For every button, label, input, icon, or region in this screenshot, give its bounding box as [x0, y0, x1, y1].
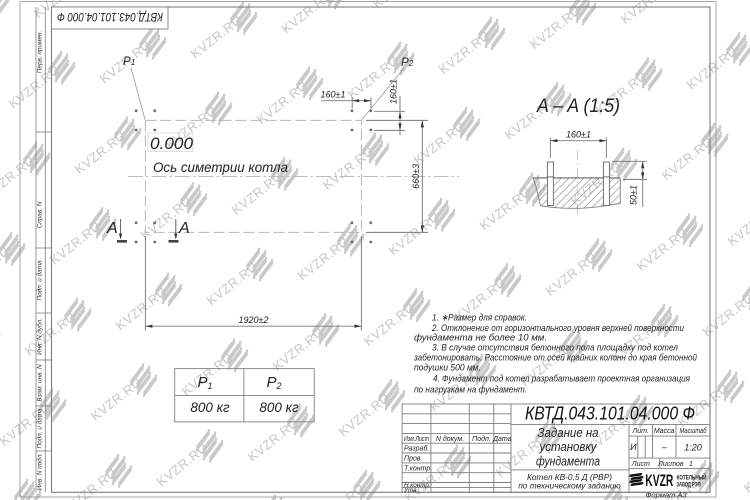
svg-text:P1: P1	[123, 56, 136, 68]
svg-text:KVZR.RU: KVZR.RU	[659, 134, 716, 183]
svg-text:забетонировать. Расстояние от: забетонировать. Расстояние от осей крайн…	[413, 353, 697, 363]
svg-text:КВТД.043.101.04.000 Ф: КВТД.043.101.04.000 Ф	[57, 10, 163, 24]
svg-text:Лист: Лист	[631, 461, 650, 468]
svg-text:фундамента: фундамента	[536, 454, 600, 469]
svg-text:KVZR.RU: KVZR.RU	[477, 184, 534, 233]
svg-text:KVZR.RU: KVZR.RU	[543, 250, 600, 299]
svg-text:Справ. N: Справ. N	[37, 201, 44, 228]
svg-text:И: И	[630, 442, 637, 452]
svg-text:A: A	[106, 220, 118, 237]
svg-text:Разраб.: Разраб.	[404, 445, 429, 453]
svg-text:800 кг: 800 кг	[190, 400, 230, 415]
svg-text:Масштаб: Масштаб	[680, 427, 708, 435]
svg-text:фундамента не более 10 мм.: фундамента не более 10 мм.	[414, 332, 547, 342]
svg-text:KVZR.RU: KVZR.RU	[618, 0, 675, 27]
svg-text:KVZR.RU: KVZR.RU	[386, 209, 443, 258]
svg-text:Инв. N подл.: Инв. N подл.	[36, 453, 44, 490]
svg-text:KVZR.RU: KVZR.RU	[361, 300, 418, 349]
svg-text:KVZR.RU: KVZR.RU	[188, 12, 245, 61]
svg-text:КВТД.043.101.04.000 Ф: КВТД.043.101.04.000 Ф	[525, 404, 695, 424]
svg-text:KVZR.RU: KVZR.RU	[684, 44, 741, 93]
svg-text:1: 1	[689, 461, 693, 468]
svg-text:1. ∗Размер для справок.: 1. ∗Размер для справок.	[432, 313, 527, 323]
svg-text:Листов: Листов	[657, 461, 684, 468]
svg-text:A – A (1:5): A – A (1:5)	[536, 96, 620, 117]
svg-text:по техническому заданию: по техническому заданию	[518, 481, 621, 491]
svg-text:KVZR.RU: KVZR.RU	[270, 325, 327, 374]
svg-text:Перв. примен.: Перв. примен.	[37, 31, 44, 73]
svg-text:Подп.: Подп.	[472, 435, 491, 443]
svg-text:Задание на: Задание на	[538, 425, 599, 440]
svg-text:KVZR.RU: KVZR.RU	[88, 375, 145, 424]
svg-text:Масса: Масса	[654, 428, 675, 435]
svg-text:1920±2: 1920±2	[239, 315, 269, 325]
svg-text:KVZR.RU: KVZR.RU	[725, 200, 750, 249]
svg-text:по нагрузкам на фундамент.: по нагрузкам на фундамент.	[414, 384, 527, 394]
svg-text:KVZR.RU: KVZR.RU	[47, 219, 104, 268]
svg-text:P2: P2	[401, 57, 414, 69]
svg-text:–: –	[661, 442, 668, 452]
svg-text:KVZR.RU: KVZR.RU	[245, 415, 302, 464]
svg-text:160±1: 160±1	[389, 79, 399, 104]
svg-text:660±3: 660±3	[411, 164, 421, 189]
svg-text:KVZR.RU: KVZR.RU	[741, 447, 750, 496]
svg-text:1:20: 1:20	[684, 443, 702, 453]
svg-text:подушки 500 мм.: подушки 500 мм.	[414, 362, 481, 372]
svg-text:KVZR.RU: KVZR.RU	[320, 144, 377, 193]
svg-text:установку: установку	[539, 439, 598, 454]
svg-text:Утв.: Утв.	[403, 487, 418, 494]
svg-text:800 кг: 800 кг	[259, 400, 299, 415]
svg-text:160±1: 160±1	[321, 90, 346, 100]
svg-text:KVZR.RU: KVZR.RU	[6, 62, 63, 111]
svg-text:KVZR.RU: KVZR.RU	[72, 128, 129, 177]
svg-text:KVZR: KVZR	[645, 472, 673, 490]
svg-text:Ось симетрии котла: Ось симетрии котла	[153, 160, 288, 175]
svg-text:KVZR.RU: KVZR.RU	[527, 3, 584, 52]
svg-text:4. Фундамент под котел разраб: 4. Фундамент под котел разрабатывает про…	[433, 373, 690, 383]
svg-text:N докум.: N докум.	[436, 435, 464, 443]
svg-text:KVZR.RU: KVZR.RU	[204, 259, 261, 308]
svg-text:Инв. N дубл.: Инв. N дубл.	[36, 318, 44, 355]
svg-text:KVZR.RU: KVZR.RU	[436, 28, 493, 77]
svg-text:Т.контр.: Т.контр.	[404, 465, 432, 472]
svg-text:A: A	[178, 220, 190, 237]
svg-text:2. Отклонение от горизонтальн: 2. Отклонение от горизонтального уровня …	[431, 323, 684, 333]
svg-text:KVZR.RU: KVZR.RU	[295, 234, 352, 283]
svg-text:3. В случае отсутствия бетонн: 3. В случае отсутствия бетонного пола пл…	[432, 343, 678, 353]
svg-text:160±1: 160±1	[566, 129, 591, 139]
svg-text:Подп. и дата: Подп. и дата	[36, 408, 44, 448]
svg-text:P2: P2	[266, 374, 281, 391]
svg-text:ЗАВОД РЭП: ЗАВОД РЭП	[677, 481, 701, 488]
svg-text:Взам. инв. N: Взам. инв. N	[37, 364, 44, 402]
svg-text:KVZR.RU: KVZR.RU	[634, 225, 691, 274]
svg-text:Лит.: Лит.	[631, 428, 648, 435]
svg-text:KVZR.RU: KVZR.RU	[279, 0, 336, 36]
svg-text:Изм.Лист: Изм.Лист	[404, 436, 429, 443]
svg-text:KVZR.RU: KVZR.RU	[411, 119, 468, 168]
svg-text:KVZR.RU: KVZR.RU	[229, 169, 286, 218]
svg-text:KVZR.RU: KVZR.RU	[154, 440, 211, 489]
svg-text:Формат А3: Формат А3	[645, 491, 687, 500]
svg-text:KVZR.RU: KVZR.RU	[700, 290, 750, 339]
svg-text:KVZR.RU: KVZR.RU	[254, 78, 311, 127]
svg-text:Пров.: Пров.	[404, 456, 423, 463]
svg-text:KVZR.RU: KVZR.RU	[63, 465, 120, 500]
svg-text:KVZR.RU: KVZR.RU	[336, 390, 393, 439]
svg-text:Дата: Дата	[492, 436, 512, 443]
svg-text:KVZR.RU: KVZR.RU	[0, 153, 38, 202]
svg-text:KVZR.RU: KVZR.RU	[22, 309, 79, 358]
svg-text:Подп. и дата: Подп. и дата	[36, 260, 44, 300]
svg-text:0.000: 0.000	[150, 135, 194, 153]
svg-text:50±1: 50±1	[629, 185, 639, 205]
